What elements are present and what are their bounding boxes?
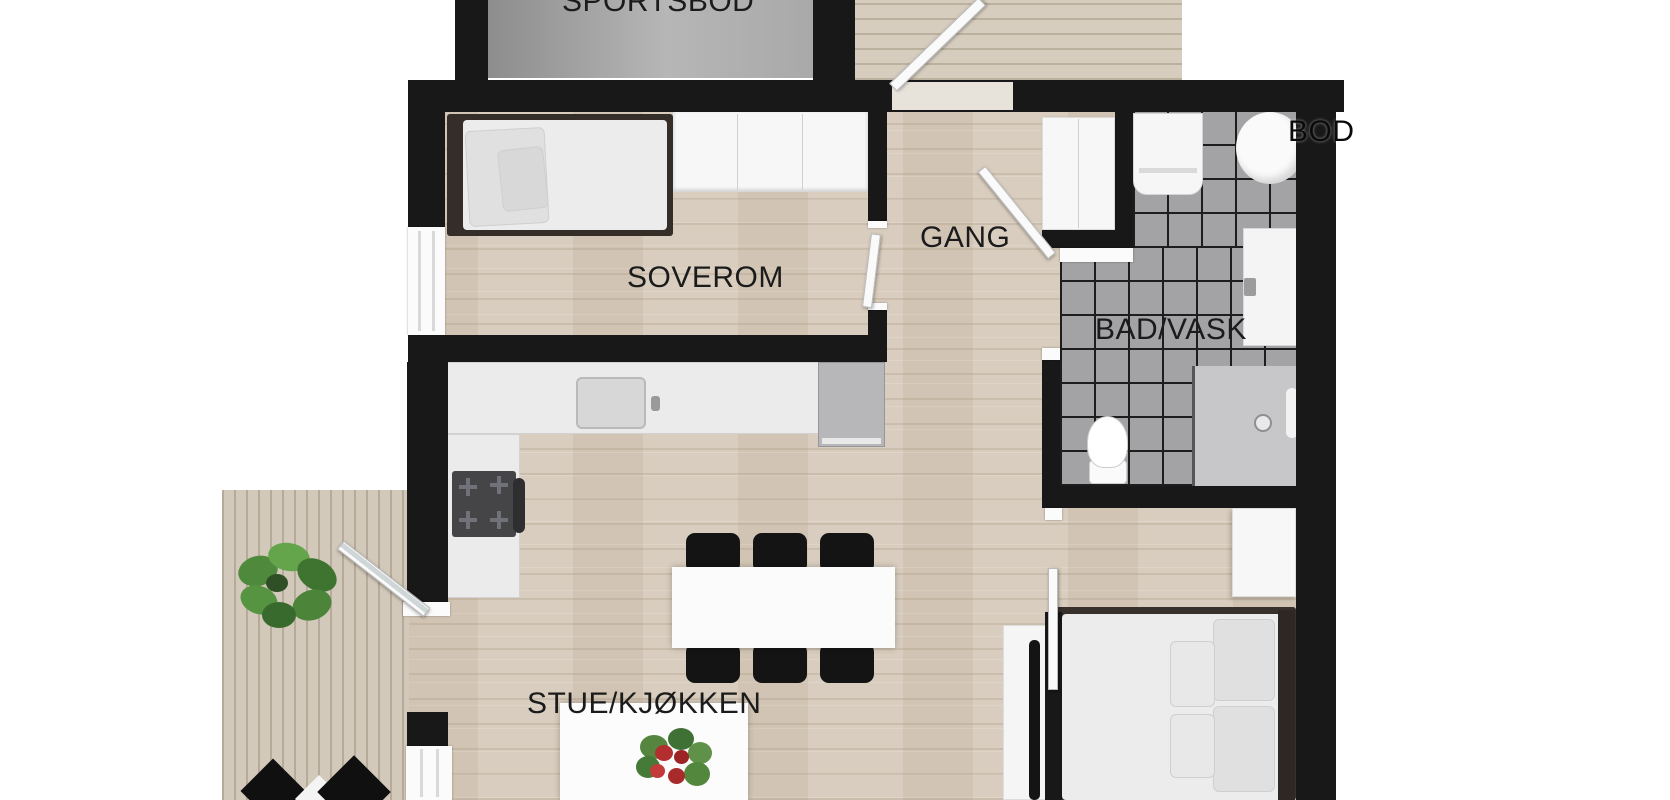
wall-soverom-gang-lower bbox=[868, 308, 887, 362]
wall-soverom-gang-upper bbox=[868, 112, 887, 224]
room-label-soverom: SOVEROM bbox=[627, 261, 784, 295]
wall-bath-bottom bbox=[1042, 486, 1296, 508]
vanity-faucet bbox=[1244, 278, 1256, 296]
pot-handle bbox=[513, 478, 525, 533]
cooktop bbox=[452, 471, 516, 537]
kitchen-sink bbox=[576, 377, 646, 429]
wall-left-living bbox=[407, 362, 448, 604]
single-bed-small-pillow bbox=[497, 146, 549, 212]
room-label-bad-vask: BAD/VASK bbox=[1095, 313, 1247, 347]
wall-top bbox=[408, 80, 1344, 112]
soverom-closet bbox=[673, 112, 868, 192]
closet-door-seam bbox=[802, 114, 803, 190]
bedroom-dresser bbox=[1232, 508, 1296, 597]
closet-door-seam bbox=[737, 114, 738, 190]
double-bed-small-pillow bbox=[1170, 714, 1215, 778]
floorplan: SPORTSBOD SOVEROM GANG BAD/VASK BOD STUE… bbox=[0, 0, 1670, 800]
bedroom-door-leaf bbox=[1048, 568, 1058, 690]
balcony-deck-floor bbox=[222, 490, 409, 800]
wall-sportsbod-left bbox=[455, 0, 488, 82]
toilet-bowl bbox=[1087, 416, 1128, 468]
fridge-handle bbox=[822, 438, 881, 444]
wall-left-pier bbox=[407, 712, 448, 746]
wall-gang-bath bbox=[1115, 110, 1133, 248]
room-label-bod: BOD bbox=[1288, 115, 1355, 149]
double-bed-headboard bbox=[1278, 610, 1295, 800]
dining-chair bbox=[686, 643, 740, 683]
double-bed-pillow bbox=[1213, 706, 1275, 792]
double-bed-small-pillow bbox=[1170, 641, 1215, 707]
bedroom-door-jamb bbox=[1045, 508, 1062, 520]
wall-bath-left bbox=[1042, 360, 1060, 486]
entrance-threshold bbox=[892, 82, 1013, 110]
room-label-stue-kjokken: STUE/KJØKKEN bbox=[527, 687, 761, 721]
dining-table bbox=[672, 567, 895, 648]
soverom-door-jamb-a bbox=[868, 221, 887, 228]
living-window-low bbox=[406, 746, 452, 800]
washing-machine-panel bbox=[1139, 168, 1197, 173]
double-bed-pillow bbox=[1213, 619, 1275, 701]
kitchen-faucet bbox=[651, 396, 660, 411]
washing-machine bbox=[1133, 113, 1203, 195]
fridge bbox=[818, 362, 885, 447]
wall-left-soverom bbox=[408, 112, 445, 227]
room-label-gang: GANG bbox=[920, 221, 1010, 255]
shower-handle bbox=[1254, 414, 1272, 432]
dining-chair bbox=[820, 643, 874, 683]
soverom-window bbox=[408, 227, 445, 335]
wall-soverom-kitchen bbox=[408, 335, 887, 362]
wall-wardrobe-stub bbox=[1042, 230, 1127, 248]
bath-door-threshold bbox=[1060, 248, 1133, 262]
wall-right bbox=[1296, 80, 1336, 800]
tv bbox=[1029, 640, 1040, 800]
wall-sportsbod-right bbox=[813, 0, 855, 82]
bath-door-jamb bbox=[1042, 348, 1060, 360]
hall-wardrobe-seam bbox=[1078, 119, 1079, 228]
room-label-sportsbod: SPORTSBOD bbox=[562, 0, 754, 19]
dining-chair bbox=[753, 643, 807, 683]
